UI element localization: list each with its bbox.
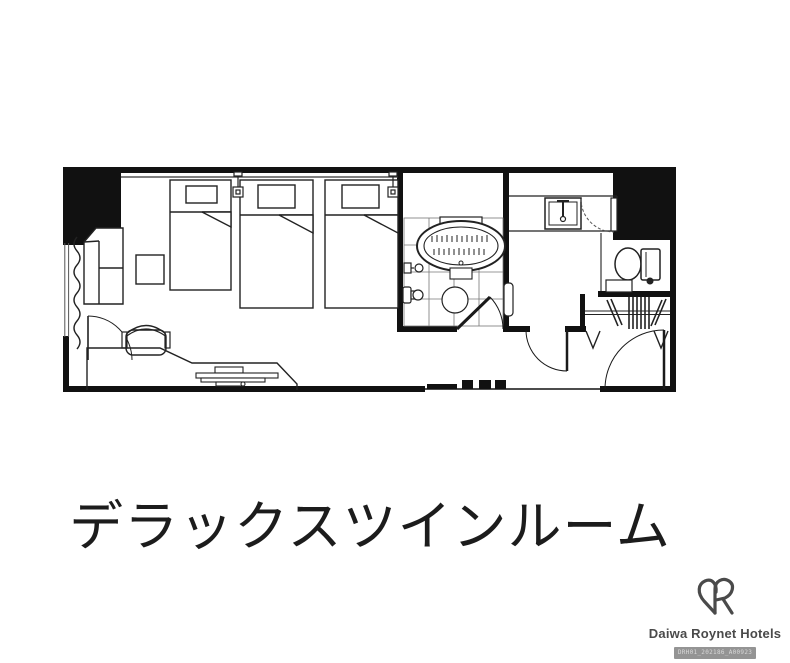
window — [65, 243, 69, 337]
bed-2 — [240, 180, 313, 308]
daiwa-roynet-monogram-icon — [685, 575, 745, 619]
closet-hangers — [607, 297, 666, 329]
mirror-door — [611, 198, 617, 231]
door-handle-plate — [504, 283, 513, 316]
bed-3 — [325, 180, 398, 308]
bathtub — [417, 217, 505, 279]
sink-vanity — [509, 196, 617, 231]
shower-fixture-icon — [403, 287, 423, 303]
room-title: デラックスツインルーム — [0, 482, 740, 561]
brand-stamp: DRH01_202186_A00923 — [674, 647, 756, 659]
entry-door — [605, 330, 664, 389]
tub-step — [450, 268, 472, 279]
pillow — [342, 185, 379, 208]
brand-block: Daiwa Roynet Hotels DRH01_202186_A00923 — [640, 575, 790, 659]
pillow — [186, 186, 217, 203]
castellated-wall-section — [427, 380, 506, 389]
vestibule-door — [526, 330, 567, 371]
folding-door-swing — [581, 199, 614, 232]
pillow — [258, 185, 295, 208]
toilet — [615, 248, 660, 285]
tv — [196, 367, 278, 386]
desk-counter — [87, 348, 297, 390]
sofa — [84, 228, 123, 304]
wall-hooks — [586, 331, 668, 348]
side-table — [136, 255, 164, 284]
desk-chair — [122, 326, 170, 356]
curtain-icon — [74, 237, 80, 349]
toilet-shelf — [606, 280, 632, 292]
brand-name: Daiwa Roynet Hotels — [640, 626, 790, 641]
floor-drain — [442, 287, 468, 313]
shower-fixture-icon — [404, 263, 423, 273]
structural-column-right — [613, 167, 676, 240]
bed-1 — [170, 180, 231, 290]
